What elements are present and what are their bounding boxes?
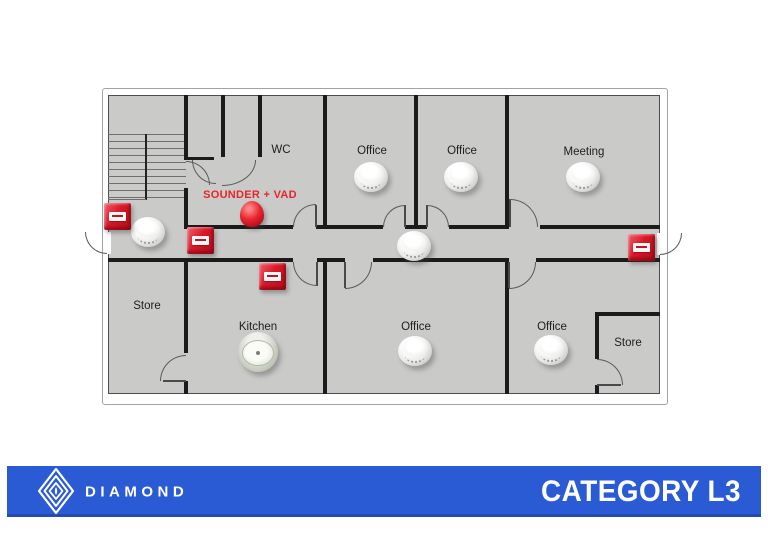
stairs	[108, 134, 186, 200]
brand-name: DIAMOND	[85, 483, 188, 500]
wall-segment	[595, 312, 660, 316]
wall-segment	[323, 95, 327, 229]
wall-segment	[540, 225, 660, 229]
exit-opening	[107, 232, 111, 254]
call-point-icon	[104, 203, 131, 230]
stairs-divider	[145, 134, 147, 200]
sounder-vad-icon	[240, 201, 264, 227]
smoke-detector-icon	[534, 335, 568, 365]
wall-segment	[184, 95, 188, 160]
room-label-office-2: Office	[447, 145, 477, 158]
wall-segment	[184, 260, 188, 353]
wall-segment	[184, 381, 188, 394]
banner: DIAMOND CATEGORY L3	[7, 466, 761, 517]
wall-segment	[595, 314, 599, 359]
wall-segment	[595, 385, 599, 394]
wall-segment	[108, 258, 293, 262]
exit-door-arc	[85, 232, 107, 254]
smoke-detector-icon	[398, 336, 432, 366]
room-label-wc: WC	[271, 144, 290, 157]
room-label-office-3: Office	[401, 321, 431, 334]
wall-segment	[414, 95, 418, 229]
category-title: CATEGORY L3	[541, 475, 741, 509]
wall-segment	[323, 258, 327, 394]
smoke-detector-icon	[566, 162, 600, 192]
heat-detector-icon	[238, 332, 278, 372]
call-point-icon	[628, 234, 655, 261]
wall-segment	[258, 95, 262, 157]
fire-alarm-floor-plan-page: WC Office Office Meeting Store Kitchen O…	[0, 0, 768, 547]
wall-segment	[221, 95, 225, 157]
call-point-icon	[259, 263, 286, 290]
wall-segment	[449, 225, 508, 229]
smoke-detector-icon	[131, 217, 165, 247]
wall-segment	[373, 258, 509, 262]
wall-segment	[316, 225, 383, 229]
exit-door-arc	[660, 233, 682, 255]
sounder-vad-label: SOUNDER + VAD	[203, 189, 297, 201]
room-label-store-right: Store	[614, 337, 642, 350]
smoke-detector-icon	[354, 162, 388, 192]
wall-segment	[317, 258, 345, 262]
room-label-store-left: Store	[133, 300, 161, 313]
stairs-base-line	[108, 199, 146, 200]
smoke-detector-icon	[444, 162, 478, 192]
diamond-logo-icon	[37, 468, 75, 514]
room-label-office-1: Office	[357, 145, 387, 158]
wall-segment	[184, 188, 188, 229]
room-label-meeting: Meeting	[564, 146, 605, 159]
smoke-detector-icon	[397, 231, 431, 261]
call-point-icon	[187, 227, 214, 254]
room-label-office-4: Office	[537, 321, 567, 334]
wall-segment	[405, 225, 427, 229]
